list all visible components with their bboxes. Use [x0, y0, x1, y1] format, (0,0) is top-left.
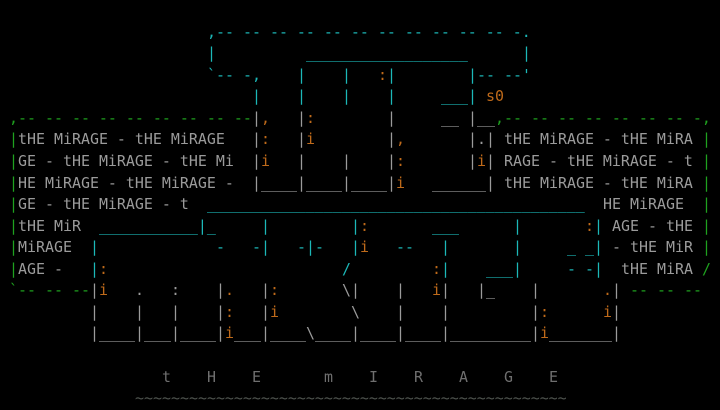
- art-segment: m: [324, 367, 333, 389]
- art-segment: |: [9, 237, 18, 259]
- art-segment: `-- -- --: [9, 280, 90, 302]
- art-segment: |: [261, 302, 270, 324]
- art-segment: -: [216, 237, 225, 259]
- art-segment: :: [171, 280, 180, 302]
- art-row: ,-- -- -- -- -- -- -- -- -- -- -- -.: [0, 22, 720, 44]
- art-segment: |: [531, 323, 540, 345]
- art-segment: |: [351, 216, 360, 238]
- art-segment: -- --': [477, 65, 531, 87]
- art-row: ,-- -- -- -- -- -- -- -- --|,|:|__|__,--…: [0, 108, 720, 130]
- art-row: |____|___|____|i___|____\____|____|____|…: [0, 323, 720, 345]
- art-segment: HE MiRAGE - tHE MiRAGE -: [18, 173, 234, 195]
- art-segment: :: [540, 302, 549, 324]
- art-row: |__________________|: [0, 43, 720, 65]
- art-segment: \: [351, 302, 360, 324]
- art-segment: i: [360, 237, 369, 259]
- art-segment: `-- -,: [207, 65, 261, 87]
- art-segment: \____: [306, 323, 351, 345]
- art-segment: ___________|_: [99, 216, 216, 238]
- art-segment: E: [549, 367, 558, 389]
- art-segment: |: [261, 216, 270, 238]
- art-segment: tHE MiRA: [621, 259, 693, 281]
- art-segment: |: [252, 86, 261, 108]
- art-row: |HE MiRAGE - tHE MiRAGE -|____|____|____…: [0, 173, 720, 195]
- art-segment: |____: [396, 323, 441, 345]
- art-segment: |: [468, 129, 477, 151]
- art-segment: H: [207, 367, 216, 389]
- art-segment: _______|: [549, 323, 621, 345]
- art-segment: i: [270, 302, 279, 324]
- art-row: tHEmIRAGE: [0, 367, 720, 389]
- art-segment: |: [702, 129, 711, 151]
- art-segment: |____: [171, 323, 216, 345]
- art-segment: |: [207, 43, 216, 65]
- art-segment: ,-- -- -- -- -- -- -- -,: [495, 108, 711, 130]
- art-segment: |: [702, 216, 711, 238]
- art-segment: i: [396, 173, 405, 195]
- art-segment: |: [387, 173, 396, 195]
- art-segment: |: [396, 302, 405, 324]
- art-segment: I: [369, 367, 378, 389]
- art-segment: i: [99, 280, 108, 302]
- art-segment: -|: [252, 237, 270, 259]
- art-segment: |: [468, 65, 477, 87]
- art-segment: |____: [351, 323, 396, 345]
- art-segment: |: [441, 280, 450, 302]
- art-segment: |: [441, 237, 450, 259]
- art-segment: |: [387, 86, 396, 108]
- art-segment: |: [171, 302, 180, 324]
- art-segment: R: [414, 367, 423, 389]
- art-row: |GE - tHE MiRAGE - t____________________…: [0, 194, 720, 216]
- art-segment: |: [9, 151, 18, 173]
- art-segment: tHE MiRAGE - tHE MiRAGE: [18, 129, 225, 151]
- art-segment: __: [441, 108, 459, 130]
- art-segment: |: [216, 302, 225, 324]
- art-segment: |: [594, 259, 603, 281]
- art-segment: :: [261, 129, 270, 151]
- art-segment: |: [90, 259, 99, 281]
- art-segment: :: [270, 280, 279, 302]
- art-segment: AGE -: [18, 259, 63, 281]
- art-segment: |: [513, 216, 522, 238]
- art-segment: |: [9, 129, 18, 151]
- art-segment: i: [540, 323, 549, 345]
- art-segment: |____: [90, 323, 135, 345]
- art-segment: - tHE MiR: [612, 237, 693, 259]
- art-segment: i: [306, 129, 315, 151]
- art-row: `-- -- --|i.:|.|:\||i||_|.|-- -- --: [0, 280, 720, 302]
- art-segment: __________________: [306, 43, 468, 65]
- art-segment: :: [432, 259, 441, 281]
- art-segment: |: [702, 173, 711, 195]
- art-segment: :: [585, 216, 594, 238]
- art-segment: |: [441, 259, 450, 281]
- art-segment: i: [261, 151, 270, 173]
- art-row: [0, 345, 720, 367]
- art-segment: .: [603, 280, 612, 302]
- art-row: ~~~~~~~~~~~~~~~~~~~~~~~~~~~~~~~~~~~~~~~~…: [0, 388, 720, 410]
- art-segment: GE - tHE MiRAGE - tHE Mi: [18, 151, 234, 173]
- art-segment: |: [261, 280, 270, 302]
- art-segment: :: [378, 65, 387, 87]
- art-segment: |: [216, 323, 225, 345]
- art-segment: |: [513, 237, 522, 259]
- art-segment: |: [387, 108, 396, 130]
- art-segment: |: [9, 173, 18, 195]
- art-row: |tHE MiR___________|_||:___|:|AGE - tHE|: [0, 216, 720, 238]
- ascii-art-logo: ,-- -- -- -- -- -- -- -- -- -- -- -.|___…: [0, 0, 720, 410]
- art-segment: MiRAGE: [18, 237, 72, 259]
- art-segment: tHE MiR: [18, 216, 81, 238]
- art-segment: |: [135, 302, 144, 324]
- art-segment: |: [90, 280, 99, 302]
- art-segment: |: [342, 65, 351, 87]
- art-segment: |: [297, 108, 306, 130]
- art-segment: :: [360, 216, 369, 238]
- art-segment: |____: [342, 173, 387, 195]
- art-segment: --: [396, 237, 414, 259]
- art-segment: :: [99, 259, 108, 281]
- art-segment: |: [486, 129, 495, 151]
- art-segment: tHE MiRAGE - tHE MiRA: [504, 173, 693, 195]
- art-segment: |____: [252, 173, 297, 195]
- art-segment: i: [225, 323, 234, 345]
- art-segment: /: [342, 259, 351, 281]
- art-segment: |: [252, 151, 261, 173]
- art-segment: t: [162, 367, 171, 389]
- art-segment: |: [9, 194, 18, 216]
- art-segment: |_: [477, 280, 495, 302]
- art-segment: |: [702, 151, 711, 173]
- art-segment: |____: [261, 323, 306, 345]
- art-row: |MiRAGE|--|-|-|i--||_ _|- tHE MiR|: [0, 237, 720, 259]
- art-segment: ___|: [486, 259, 522, 281]
- art-segment: |: [297, 65, 306, 87]
- art-segment: ,-- -- -- -- -- -- -- -- --: [9, 108, 252, 130]
- art-segment: |: [252, 129, 261, 151]
- art-segment: -- -- --: [630, 280, 702, 302]
- art-segment: RAGE - tHE MiRAGE - t: [504, 151, 693, 173]
- art-segment: |: [252, 108, 261, 130]
- art-segment: |: [387, 129, 396, 151]
- art-segment: /: [702, 259, 711, 281]
- art-row: ||||___|s0: [0, 86, 720, 108]
- art-segment: AGE - tHE: [612, 216, 693, 238]
- art-segment: ___|: [441, 86, 477, 108]
- art-segment: |: [396, 280, 405, 302]
- art-segment: |___: [135, 323, 171, 345]
- art-segment: |: [387, 65, 396, 87]
- art-row: |GE - tHE MiRAGE - tHE Mi|i|||:|i|RAGE -…: [0, 151, 720, 173]
- art-segment: |: [612, 302, 621, 324]
- art-segment: |__: [468, 108, 495, 130]
- art-segment: |: [9, 216, 18, 238]
- art-row: |tHE MiRAGE - tHE MiRAGE|:|i|,|.|tHE MiR…: [0, 129, 720, 151]
- art-segment: ________________________________________…: [207, 194, 585, 216]
- art-segment: |: [387, 151, 396, 173]
- art-row: ||||:|i\|||:i|: [0, 302, 720, 324]
- art-segment: .: [477, 129, 486, 151]
- art-row: |AGE -|:/:|___|- -|tHE MiRA/: [0, 259, 720, 281]
- art-segment: i: [603, 302, 612, 324]
- art-segment: ,-- -- -- -- -- -- -- -- -- -- -- -.: [207, 22, 531, 44]
- art-segment: |: [702, 237, 711, 259]
- art-segment: |: [90, 302, 99, 324]
- art-row: `-- -,||:||-- --': [0, 65, 720, 87]
- art-segment: ___: [432, 216, 459, 238]
- art-segment: :: [306, 108, 315, 130]
- art-segment: :: [396, 151, 405, 173]
- art-segment: s0: [486, 86, 504, 108]
- art-segment: ___: [234, 323, 261, 345]
- art-segment: |: [216, 280, 225, 302]
- art-segment: HE MiRAGE: [603, 194, 684, 216]
- art-segment: ,: [261, 108, 270, 130]
- art-segment: G: [504, 367, 513, 389]
- art-segment: tHE MiRAGE - tHE MiRA: [504, 129, 693, 151]
- art-segment: |: [297, 151, 306, 173]
- art-segment: i: [432, 280, 441, 302]
- art-segment: .: [135, 280, 144, 302]
- art-segment: .: [225, 280, 234, 302]
- art-segment: |: [531, 280, 540, 302]
- art-segment: -|-: [297, 237, 324, 259]
- art-segment: |: [531, 302, 540, 324]
- art-segment: |: [594, 216, 603, 238]
- art-segment: :: [225, 302, 234, 324]
- art-segment: ______|: [432, 173, 495, 195]
- art-segment: GE - tHE MiRAGE - t: [18, 194, 189, 216]
- art-segment: |: [612, 280, 621, 302]
- art-segment: \|: [342, 280, 360, 302]
- art-row: [0, 0, 720, 22]
- art-segment: |: [468, 151, 477, 173]
- art-segment: |: [594, 237, 603, 259]
- art-segment: |: [342, 86, 351, 108]
- art-segment: |: [342, 151, 351, 173]
- art-segment: - -: [567, 259, 594, 281]
- art-segment: |_________: [441, 323, 531, 345]
- art-segment: _ _: [567, 237, 594, 259]
- art-segment: |: [441, 302, 450, 324]
- art-segment: |: [297, 86, 306, 108]
- art-segment: |: [522, 43, 531, 65]
- art-segment: |: [351, 237, 360, 259]
- art-segment: |: [486, 151, 495, 173]
- art-segment: |: [297, 129, 306, 151]
- art-segment: i: [477, 151, 486, 173]
- art-segment: |____: [297, 173, 342, 195]
- art-segment: E: [252, 367, 261, 389]
- art-segment: |: [702, 194, 711, 216]
- art-segment: |: [90, 237, 99, 259]
- art-segment: ~~~~~~~~~~~~~~~~~~~~~~~~~~~~~~~~~~~~~~~~…: [135, 388, 567, 410]
- art-segment: A: [459, 367, 468, 389]
- art-segment: |: [9, 259, 18, 281]
- terminal-screen: ,-- -- -- -- -- -- -- -- -- -- -- -.|___…: [0, 0, 720, 410]
- art-segment: ,: [396, 129, 405, 151]
